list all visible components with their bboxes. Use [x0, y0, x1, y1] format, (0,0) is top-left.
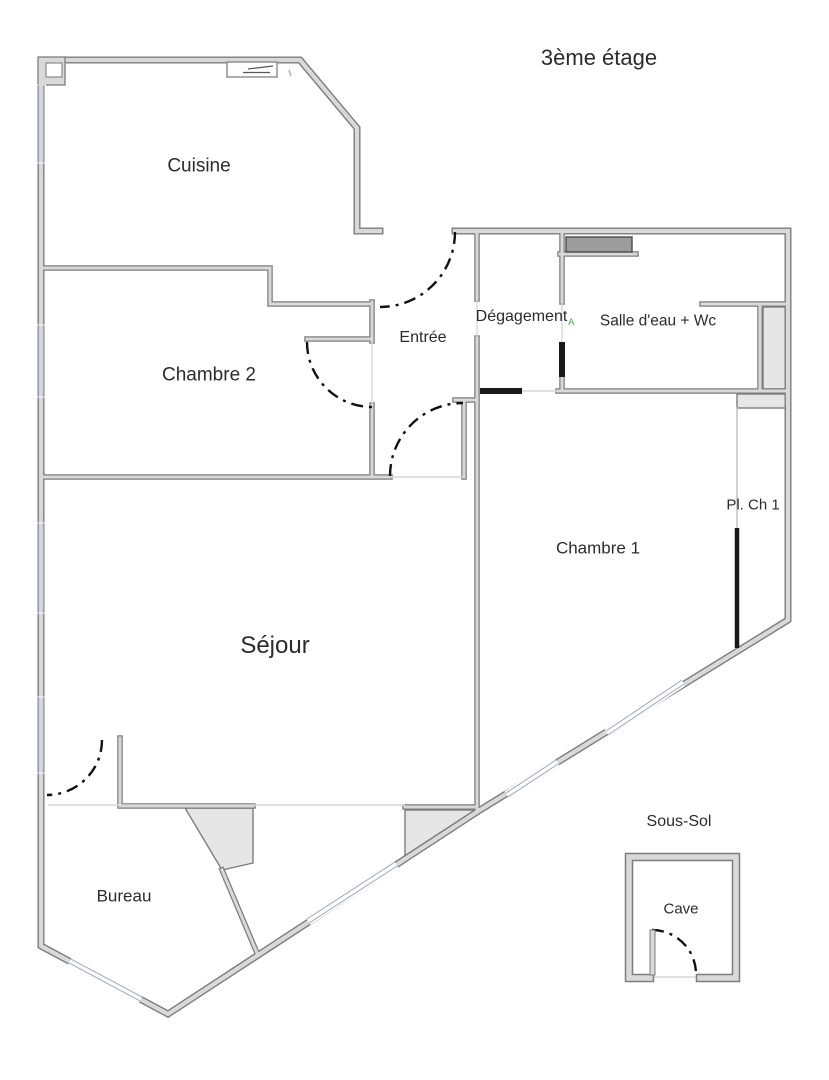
degagement-marker-a: A	[568, 318, 574, 327]
room-label-cuisine: Cuisine	[167, 157, 230, 176]
basement-title: Sous-Sol	[647, 814, 712, 830]
chambre2-door-arc	[307, 342, 372, 407]
degagement-label-text: Dégagement	[476, 308, 568, 325]
sejour-door-arc	[390, 403, 463, 476]
cave-door-leaf	[650, 930, 655, 975]
bureau-door-arc	[47, 740, 102, 795]
cave-door-arc	[652, 930, 696, 974]
walls	[41, 60, 788, 1014]
window-diagonal-ch1-b	[506, 760, 558, 797]
floor-plan-drawing	[0, 0, 829, 1080]
room-label-entree: Entrée	[399, 330, 446, 346]
floor-title: 3ème étage	[541, 47, 657, 69]
green-tick	[289, 70, 291, 76]
black-bars	[480, 342, 737, 648]
bathroom-dark-unit	[566, 237, 632, 252]
room-label-pl-ch1: Pl. Ch 1	[726, 498, 779, 513]
room-label-salle-eau: Salle d'eau + Wc	[600, 313, 716, 329]
window-diagonal-sw	[69, 959, 142, 1001]
room-label-sejour: Séjour	[240, 634, 309, 658]
bathroom-duct-closet	[763, 307, 787, 389]
corner-vent-box	[46, 63, 62, 77]
floor-plan-page: 3ème étage Cuisine Chambre 2 Entrée Déga…	[0, 0, 829, 1080]
room-label-degagement: DégagementA	[476, 309, 575, 325]
front-door-arc	[380, 232, 455, 307]
cave-plan	[629, 857, 736, 978]
window-diagonal-ch1-a	[606, 680, 684, 735]
placard-ch1-top	[737, 394, 787, 408]
room-label-bureau: Bureau	[97, 888, 152, 905]
thresholds	[48, 299, 737, 977]
bureau-chimney-closet	[185, 808, 253, 870]
room-label-chambre1: Chambre 1	[556, 540, 640, 557]
room-label-cave: Cave	[663, 902, 698, 917]
room-label-chambre2: Chambre 2	[162, 366, 256, 385]
window-diagonal-sejour	[307, 862, 397, 923]
top-wall-vent	[227, 62, 291, 77]
corner-block	[38, 57, 65, 85]
